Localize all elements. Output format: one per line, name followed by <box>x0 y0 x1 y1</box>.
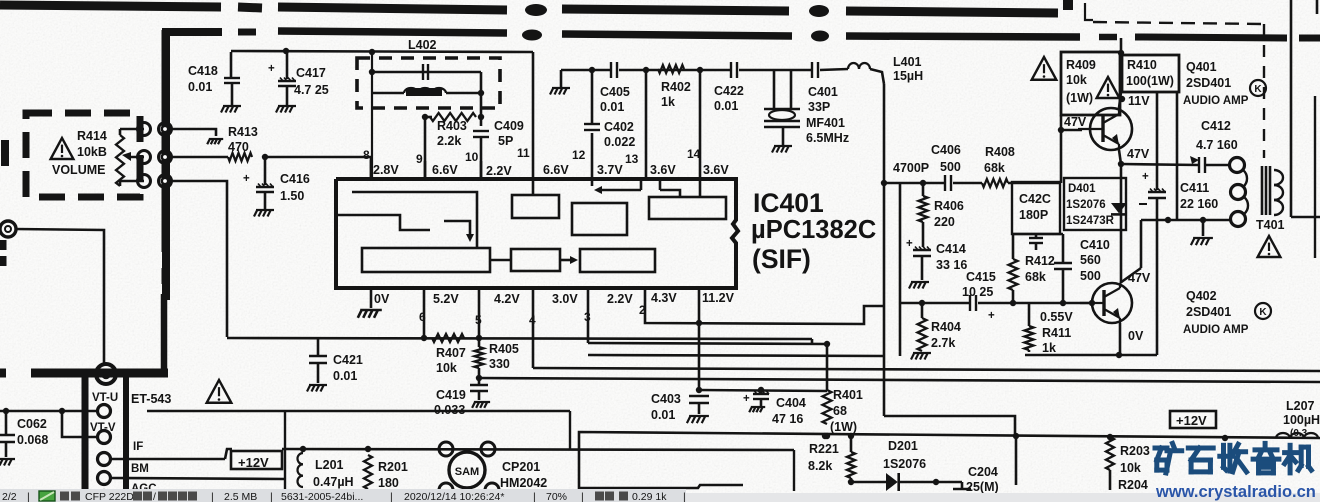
svg-text:5P: 5P <box>498 134 513 148</box>
svg-text:2020/12/14 10:26:24*: 2020/12/14 10:26:24* <box>404 491 504 502</box>
svg-text:C406: C406 <box>931 143 961 157</box>
svg-text:2.2k: 2.2k <box>437 134 461 148</box>
svg-text:+: + <box>906 238 913 250</box>
svg-text:|: | <box>211 491 214 502</box>
svg-text:+: + <box>988 310 995 322</box>
svg-text:L402: L402 <box>408 38 437 52</box>
svg-text:|: | <box>533 491 536 502</box>
svg-text:4.3V: 4.3V <box>651 291 677 305</box>
svg-text:8: 8 <box>363 148 370 162</box>
svg-text:4.7 160: 4.7 160 <box>1196 138 1238 152</box>
svg-text:14: 14 <box>687 147 701 161</box>
svg-text:C404: C404 <box>776 396 806 410</box>
svg-text:33P: 33P <box>808 100 830 114</box>
svg-text:AUDIO AMP: AUDIO AMP <box>1183 95 1249 107</box>
svg-text:C405: C405 <box>600 85 630 99</box>
svg-text:D201: D201 <box>888 439 918 453</box>
svg-text:70%: 70% <box>546 491 567 502</box>
svg-text:R409: R409 <box>1066 58 1096 72</box>
svg-text:C415: C415 <box>966 270 996 284</box>
svg-text:R204: R204 <box>1118 478 1148 492</box>
svg-text:3.0V: 3.0V <box>552 292 578 306</box>
svg-text:C42C: C42C <box>1019 192 1051 206</box>
svg-text:1.50: 1.50 <box>280 189 304 203</box>
svg-text:0.01: 0.01 <box>714 99 738 113</box>
svg-text:R221: R221 <box>809 442 839 456</box>
svg-text:C419: C419 <box>436 388 466 402</box>
svg-text:6.6V: 6.6V <box>543 163 569 177</box>
svg-text:100(1W): 100(1W) <box>1126 74 1174 88</box>
svg-text:AUDIO AMP: AUDIO AMP <box>1183 324 1249 336</box>
svg-text:1k: 1k <box>1042 341 1056 355</box>
svg-text:R401: R401 <box>833 388 863 402</box>
svg-text:R412: R412 <box>1025 254 1055 268</box>
svg-text:C403: C403 <box>651 392 681 406</box>
svg-text:CFP 222D: CFP 222D <box>85 491 134 502</box>
svg-text:47 16: 47 16 <box>772 412 803 426</box>
svg-text:10k: 10k <box>1066 73 1087 87</box>
svg-text:11V: 11V <box>1128 94 1150 108</box>
svg-text:3.7V: 3.7V <box>597 163 623 177</box>
svg-text:VOLUME: VOLUME <box>52 163 105 177</box>
svg-text:R405: R405 <box>489 342 519 356</box>
svg-text:(SIF): (SIF) <box>752 244 811 274</box>
svg-text:C402: C402 <box>604 120 634 134</box>
svg-text:6.5MHz: 6.5MHz <box>806 131 849 145</box>
svg-text:IF: IF <box>133 441 143 453</box>
svg-text:T401: T401 <box>1256 218 1285 232</box>
svg-text:K: K <box>1254 84 1262 95</box>
svg-text:4700P: 4700P <box>893 161 929 175</box>
svg-text:0.01: 0.01 <box>333 369 357 383</box>
svg-text:R407: R407 <box>436 346 466 360</box>
svg-text:3.6V: 3.6V <box>650 163 676 177</box>
svg-text:10 25: 10 25 <box>962 285 993 299</box>
svg-text:|: | <box>27 491 30 502</box>
svg-text:(1W): (1W) <box>1066 91 1093 105</box>
svg-text:33 16: 33 16 <box>936 258 967 272</box>
svg-text:R201: R201 <box>378 460 408 474</box>
svg-text:R403: R403 <box>437 119 467 133</box>
svg-text:+: + <box>743 393 750 405</box>
svg-text:13: 13 <box>625 152 639 166</box>
svg-text:0.47µH: 0.47µH <box>313 475 354 489</box>
svg-text:11: 11 <box>517 146 530 160</box>
svg-text:330: 330 <box>489 357 510 371</box>
svg-text:9: 9 <box>416 152 423 166</box>
svg-text:0V: 0V <box>1128 329 1144 343</box>
svg-text:L401: L401 <box>893 55 922 69</box>
svg-text:2SD401: 2SD401 <box>1186 305 1231 319</box>
svg-text:R413: R413 <box>228 125 258 139</box>
svg-text:68k: 68k <box>1025 270 1046 284</box>
svg-text:C414: C414 <box>936 242 966 256</box>
svg-text:SAM: SAM <box>455 466 479 478</box>
svg-text:0.01: 0.01 <box>600 100 624 114</box>
svg-text:C412: C412 <box>1201 119 1231 133</box>
svg-text:C411: C411 <box>1180 181 1209 195</box>
svg-text:15µH: 15µH <box>893 69 923 83</box>
svg-text:Q401: Q401 <box>1186 60 1217 74</box>
svg-text:5631-2005-24bi...: 5631-2005-24bi... <box>281 491 363 502</box>
svg-text:47V: 47V <box>1128 271 1151 285</box>
svg-text:R414: R414 <box>77 129 107 143</box>
svg-text:R402: R402 <box>661 80 691 94</box>
svg-text:47V: 47V <box>1064 115 1087 129</box>
svg-text:2.5 MB: 2.5 MB <box>224 491 257 502</box>
svg-text:|: | <box>270 491 273 502</box>
svg-text:C062: C062 <box>17 417 47 431</box>
svg-text:10kB: 10kB <box>77 145 107 159</box>
svg-text:BM: BM <box>131 463 149 475</box>
svg-text:+: + <box>268 63 275 75</box>
svg-text:(0.3: (0.3 <box>1290 428 1308 439</box>
svg-text:|: | <box>683 491 686 502</box>
svg-text:R408: R408 <box>985 145 1015 159</box>
svg-text:+12V: +12V <box>1176 413 1207 428</box>
svg-text:10: 10 <box>465 150 479 164</box>
svg-text:0.01: 0.01 <box>651 408 675 422</box>
svg-text:10k: 10k <box>1120 461 1141 475</box>
svg-text:|: | <box>390 491 393 502</box>
svg-text:2.8V: 2.8V <box>373 163 399 177</box>
svg-text:2.2V: 2.2V <box>486 164 512 178</box>
svg-text:8.2k: 8.2k <box>808 459 832 473</box>
svg-text:0.022: 0.022 <box>604 135 635 149</box>
svg-text:C417: C417 <box>296 66 326 80</box>
svg-text:0.01: 0.01 <box>188 80 212 94</box>
svg-text:L207: L207 <box>1286 399 1315 413</box>
svg-text:R411: R411 <box>1042 326 1071 340</box>
svg-text:0V: 0V <box>374 292 390 306</box>
svg-text:D401: D401 <box>1068 183 1096 195</box>
svg-text:12: 12 <box>572 148 586 162</box>
svg-text:www.crystalradio.cn: www.crystalradio.cn <box>1155 483 1316 501</box>
svg-text:CP201: CP201 <box>502 460 540 474</box>
svg-text:500: 500 <box>940 160 961 174</box>
svg-text:HM2042: HM2042 <box>500 476 547 490</box>
svg-text:K: K <box>1259 307 1267 318</box>
svg-text:C422: C422 <box>714 84 744 98</box>
svg-text:4.7 25: 4.7 25 <box>294 83 329 97</box>
svg-text:0.55V: 0.55V <box>1040 310 1073 324</box>
svg-text:+: + <box>1142 171 1149 183</box>
svg-text:VT-U: VT-U <box>92 392 118 404</box>
svg-text:6.6V: 6.6V <box>432 163 458 177</box>
svg-text:R203: R203 <box>1120 444 1150 458</box>
svg-text:1k: 1k <box>661 95 675 109</box>
svg-text:220: 220 <box>934 215 955 229</box>
svg-text:2.7k: 2.7k <box>931 336 955 350</box>
svg-text:+: + <box>243 173 250 185</box>
svg-text:1S2076: 1S2076 <box>883 457 926 471</box>
svg-text:10k: 10k <box>436 361 457 375</box>
svg-text:2.2V: 2.2V <box>607 292 633 306</box>
svg-text:C410: C410 <box>1080 238 1110 252</box>
svg-text:0.29 1k: 0.29 1k <box>632 491 667 502</box>
svg-text:11.2V: 11.2V <box>702 291 735 305</box>
svg-text:C409: C409 <box>494 119 524 133</box>
svg-text:C204: C204 <box>968 465 998 479</box>
svg-text:C418: C418 <box>188 64 218 78</box>
svg-text:4.2V: 4.2V <box>494 292 520 306</box>
svg-text:3.6V: 3.6V <box>703 163 729 177</box>
svg-text:ET-543: ET-543 <box>131 392 171 406</box>
svg-text:2SD401: 2SD401 <box>1186 76 1231 90</box>
svg-text:C416: C416 <box>280 172 310 186</box>
svg-text:180P: 180P <box>1019 208 1048 222</box>
svg-text:|: | <box>581 491 584 502</box>
svg-text:µPC1382C: µPC1382C <box>751 216 876 244</box>
svg-text:IC401: IC401 <box>753 188 824 218</box>
svg-text:100µH: 100µH <box>1283 413 1320 427</box>
svg-text:R410: R410 <box>1127 58 1157 72</box>
svg-text:22 160: 22 160 <box>1180 197 1218 211</box>
svg-text:180: 180 <box>378 476 399 490</box>
svg-text:L201: L201 <box>315 458 344 472</box>
svg-text:R406: R406 <box>934 199 964 213</box>
svg-text:MF401: MF401 <box>806 116 845 130</box>
svg-text:Q402: Q402 <box>1186 289 1217 303</box>
svg-text:0.068: 0.068 <box>17 433 48 447</box>
svg-text:1S2076: 1S2076 <box>1066 199 1106 211</box>
svg-text:68: 68 <box>833 404 847 418</box>
svg-text:/: / <box>153 491 156 502</box>
svg-text:500: 500 <box>1080 269 1101 283</box>
svg-text:25(M): 25(M) <box>966 480 999 494</box>
svg-text:5.2V: 5.2V <box>433 292 459 306</box>
svg-text:(1W): (1W) <box>830 420 857 434</box>
svg-text:2/2: 2/2 <box>2 491 17 502</box>
svg-text:47V: 47V <box>1127 147 1150 161</box>
svg-text:1S2473R: 1S2473R <box>1066 215 1115 227</box>
svg-text:C401: C401 <box>808 85 838 99</box>
svg-text:R404: R404 <box>931 320 961 334</box>
svg-text:+12V: +12V <box>238 455 269 470</box>
svg-text:C421: C421 <box>333 353 363 367</box>
svg-text:560: 560 <box>1080 253 1101 267</box>
svg-text:68k: 68k <box>984 161 1005 175</box>
